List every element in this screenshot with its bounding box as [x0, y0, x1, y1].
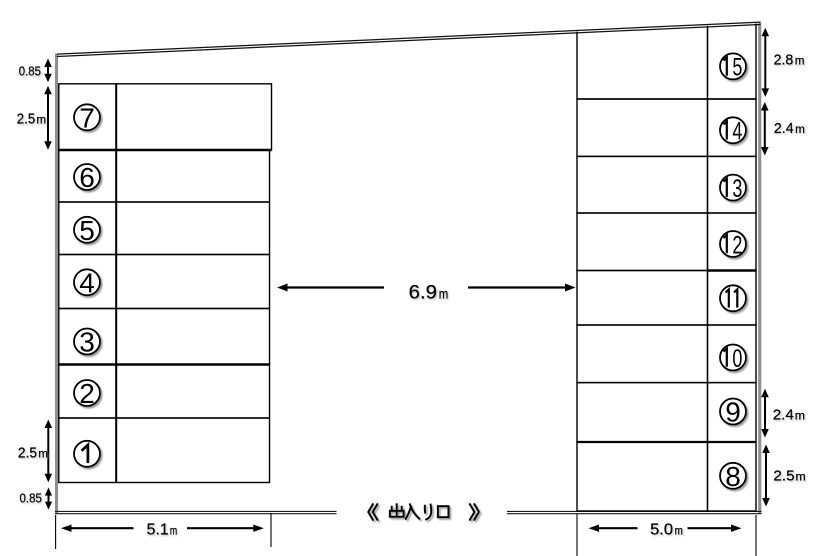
svg-text:4: 4 — [79, 268, 95, 299]
svg-text:5: 5 — [79, 215, 95, 246]
svg-text:5: 5 — [732, 55, 742, 82]
svg-text:4: 4 — [732, 119, 742, 146]
svg-text:m: m — [796, 469, 806, 483]
svg-text:0.85: 0.85 — [19, 63, 41, 78]
svg-text:m: m — [38, 448, 48, 461]
svg-text:2.5: 2.5 — [17, 111, 35, 127]
svg-text:7: 7 — [79, 103, 95, 134]
svg-text:5.1: 5.1 — [147, 521, 169, 538]
svg-text:8: 8 — [725, 461, 741, 492]
svg-text:m: m — [675, 525, 683, 537]
svg-text:2.4: 2.4 — [774, 121, 794, 137]
svg-text:2: 2 — [732, 232, 742, 259]
svg-text:2: 2 — [79, 378, 95, 409]
svg-text:6: 6 — [79, 162, 95, 193]
svg-text:m: m — [439, 285, 449, 301]
svg-text:5.0: 5.0 — [650, 521, 673, 538]
svg-text:m: m — [795, 54, 805, 67]
svg-text:3: 3 — [79, 327, 95, 358]
svg-text:m: m — [795, 123, 805, 136]
svg-text:2.5: 2.5 — [18, 446, 37, 462]
svg-text:0.85: 0.85 — [20, 491, 42, 506]
svg-text:3: 3 — [732, 176, 742, 203]
svg-text:m: m — [795, 408, 805, 422]
svg-text:6.9: 6.9 — [409, 281, 437, 303]
svg-text:m: m — [170, 525, 177, 537]
svg-text:2.5: 2.5 — [773, 467, 794, 484]
svg-text:m: m — [36, 113, 46, 126]
svg-text:2.8: 2.8 — [774, 52, 794, 68]
svg-text:2.4: 2.4 — [773, 406, 794, 423]
svg-text:9: 9 — [725, 397, 741, 428]
svg-text:0: 0 — [732, 346, 742, 373]
